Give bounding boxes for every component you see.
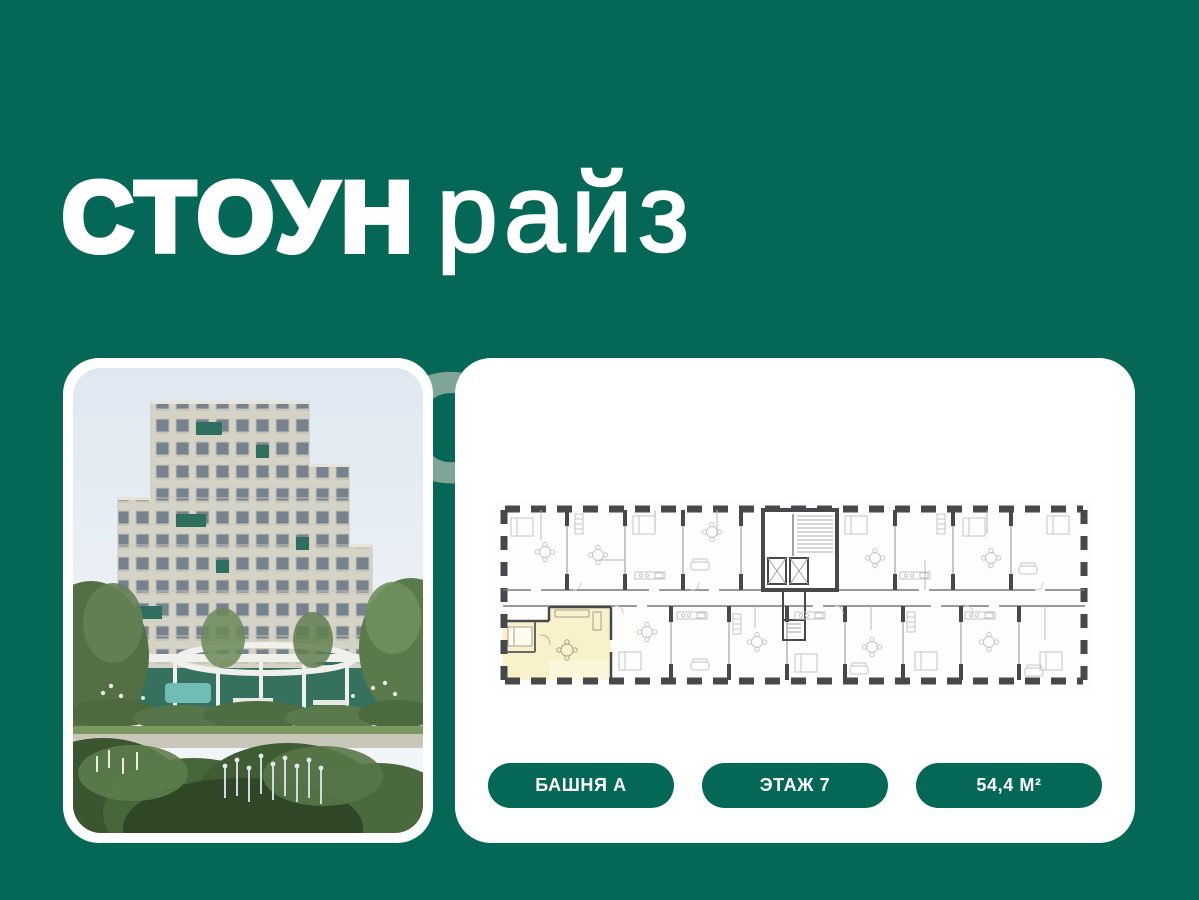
logo-word-stoun: СТОУН [62, 158, 417, 277]
floor-plan-card: БАШНЯ А ЭТАЖ 7 54,4 М² [455, 358, 1135, 843]
apartment-info-badges: БАШНЯ А ЭТАЖ 7 54,4 М² [488, 763, 1102, 808]
building-photo-card [63, 358, 433, 843]
floor-plan [495, 500, 1093, 690]
building-photo [73, 368, 423, 833]
brand-logo: СТОУН райз [62, 148, 695, 280]
page-background: { "logo": { "word1": "СТОУН", "word2": "… [0, 0, 1199, 900]
floor-plan-drawing [495, 500, 1093, 690]
logo-word-rise: райз [437, 148, 695, 280]
tower-badge[interactable]: БАШНЯ А [488, 763, 674, 808]
floor-badge[interactable]: ЭТАЖ 7 [702, 763, 888, 808]
building-photo-illustration [73, 368, 423, 833]
area-badge[interactable]: 54,4 М² [916, 763, 1102, 808]
